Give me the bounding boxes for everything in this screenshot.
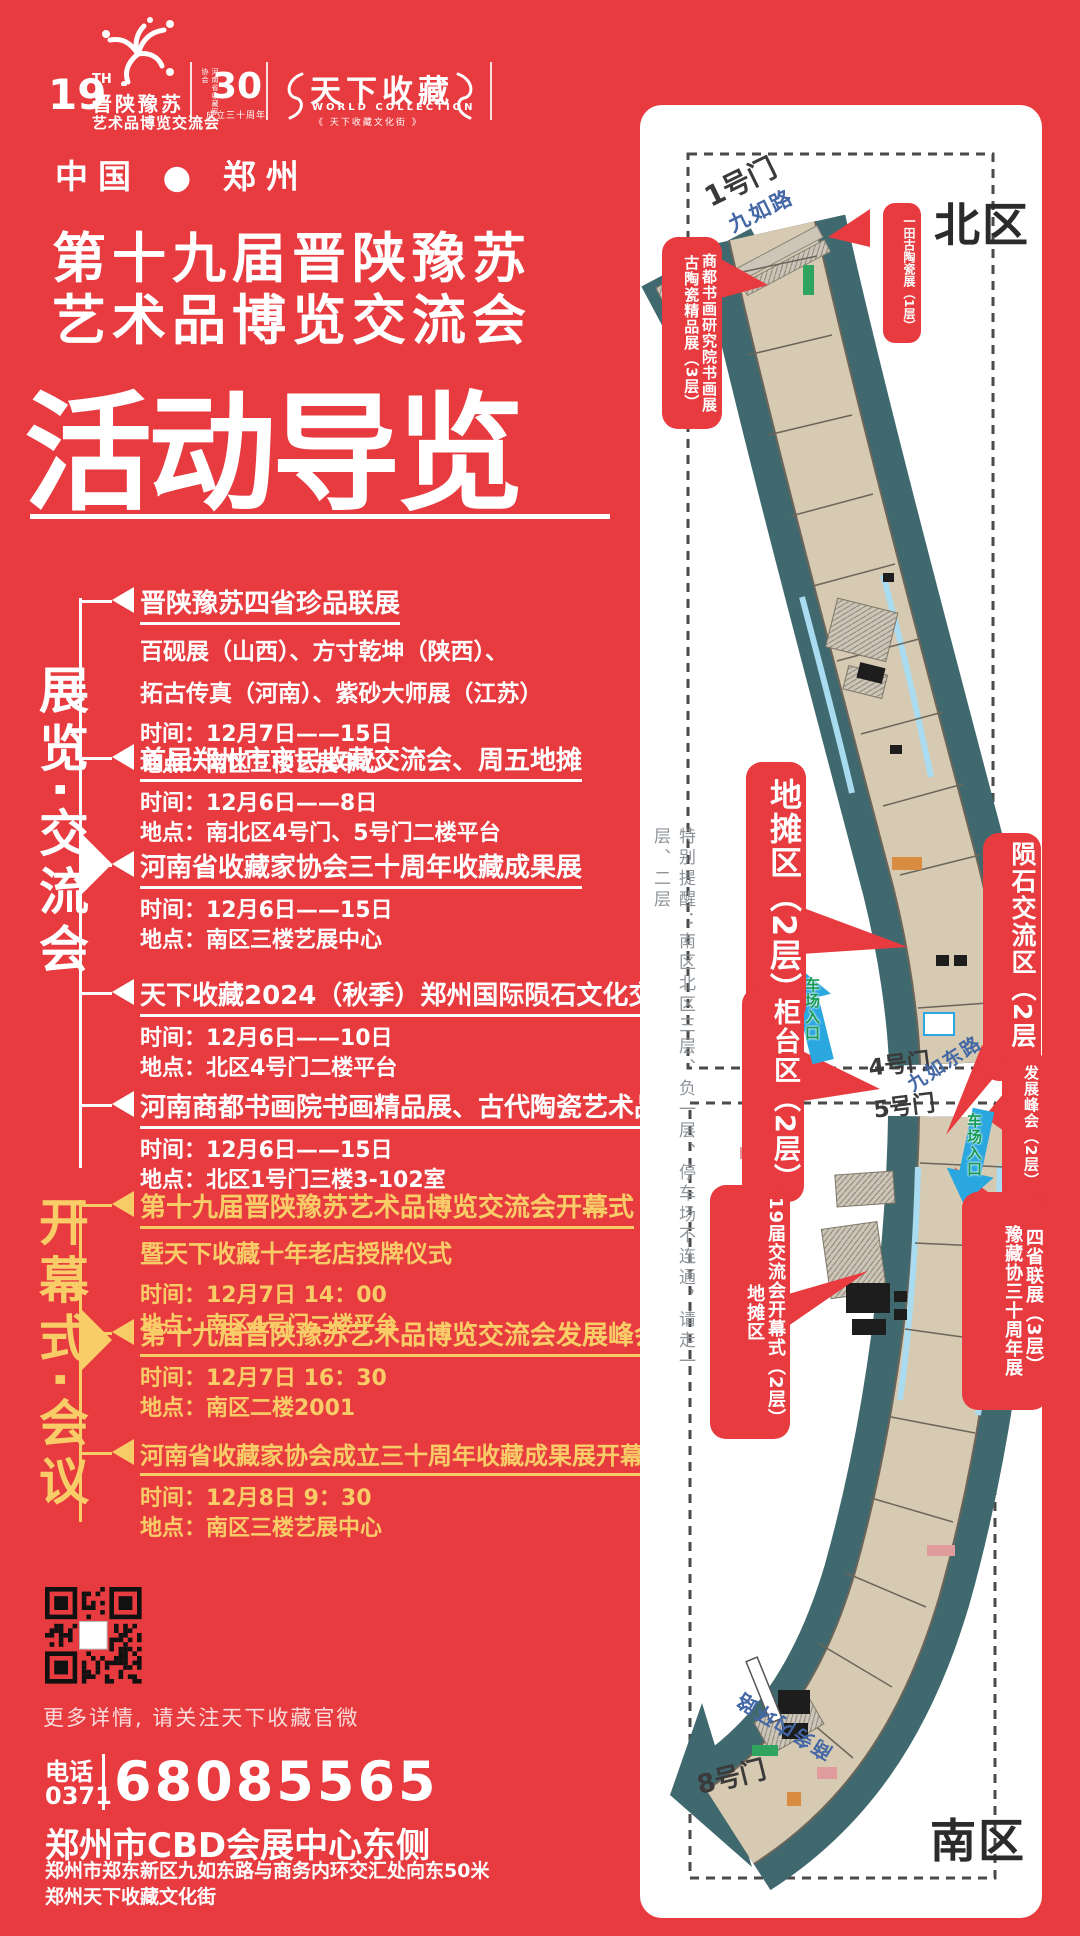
header-divider: [266, 62, 268, 120]
event-time: 时间：12月6日——8日: [140, 789, 660, 819]
header-divider: [190, 62, 192, 120]
event-arrow-icon: [112, 744, 134, 770]
timeline-tick: [82, 1204, 112, 1207]
timeline-tick: [82, 992, 112, 995]
callout-meteorite-zone: 陨石交流区（2层）: [983, 833, 1041, 1081]
phone-divider: [102, 1754, 105, 1810]
callout-counter-zone: 柜台区（2层）: [742, 988, 804, 1202]
event-collectors-30th: 河南省收藏家协会三十周年收藏成果展 时间：12月6日——15日 地点：南区三楼艺…: [140, 852, 660, 956]
title-underline: [30, 514, 610, 519]
timeline-tick: [82, 600, 112, 603]
event-arrow-icon: [112, 1091, 134, 1117]
dragon-ornament-right-icon: [452, 70, 478, 122]
event-title: 晋陕豫苏四省珍品联展: [140, 588, 660, 620]
callout-shangdu-painting: 商都书画研究院书画展古陶瓷精品展（3层）: [662, 237, 722, 429]
event-time: 时间：12月8日 9：30: [140, 1484, 660, 1514]
map-notice: 特别提醒：南区北区三层、负一层、停车场不连通，请走一层、二层: [648, 827, 698, 1393]
event-meteorite-conference: 天下收藏2024（秋季）郑州国际陨石文化交流大会 时间：12月6日——10日 地…: [140, 980, 660, 1084]
event-title: 河南商都书画院书画精品展、古代陶瓷艺术品精品展: [140, 1092, 660, 1124]
timeline-tick: [82, 1104, 112, 1107]
event-time: 时间：12月6日——15日: [140, 1136, 660, 1166]
event-title: 第十九届晋陕豫苏艺术品博览交流会开幕式: [140, 1192, 660, 1224]
event-place: 地点：南区三楼艺展中心: [140, 1514, 660, 1544]
event-place: 地点：南区三楼艺展中心: [140, 926, 660, 956]
section-label-exhibitions: 展览·交流会: [24, 664, 96, 981]
event-subtitle: 暨天下收藏十年老店授牌仪式: [140, 1234, 660, 1269]
event-annual-meeting: 河南省收藏家协会成立三十周年收藏成果展开幕式暨2025年年会 时间：12月8日 …: [140, 1440, 660, 1544]
south-district-label: 南区: [930, 1805, 1026, 1871]
event-place: 地点：南北区4号门、5号门二楼平台: [140, 819, 660, 849]
poster-title-line2: 艺术品博览交流会: [52, 276, 532, 355]
event-opening-ceremony: 第十九届晋陕豫苏艺术品博览交流会开幕式 暨天下收藏十年老店授牌仪式 时间：12月…: [140, 1192, 660, 1341]
timeline-tick: [82, 1332, 112, 1335]
callout-yitian-ceramics: 一田古陶瓷展（1层）: [883, 203, 921, 343]
event-shangdu-exhibition: 河南商都书画院书画精品展、古代陶瓷艺术品精品展 时间：12月6日——15日 地点…: [140, 1092, 660, 1196]
address-line1: 郑州市郑东新区九如东路与商务内环交汇处向东50米: [45, 1856, 489, 1883]
event-title: 天下收藏2024（秋季）郑州国际陨石文化交流大会: [140, 980, 660, 1012]
event-title: 河南省收藏家协会三十周年收藏成果展: [140, 852, 660, 884]
poster-headline: 活动导览: [24, 350, 520, 535]
event-time: 时间：12月7日 16：30: [140, 1364, 660, 1394]
event-desc: 拓古传真（河南）、紫砂大师展（江苏）: [140, 674, 660, 708]
event-desc: 百砚展（山西）、方寸乾坤（陕西）、: [140, 632, 660, 666]
event-citizen-exchange: 首届郑州市市民收藏交流会、周五地摊 时间：12月6日——8日 地点：南北区4号门…: [140, 745, 660, 849]
section-pointer-icon: [82, 1310, 112, 1370]
collection-logo-tagline: 《 天下收藏文化街 》: [314, 115, 423, 128]
address-line2: 郑州天下收藏文化街: [45, 1882, 216, 1909]
venue-map-panel: 北区 南区 特别提醒：南区北区三层、负一层、停车场不连通，请走一层、二层 1号门…: [640, 105, 1042, 1918]
event-place: 地点：北区4号门二楼平台: [140, 1054, 660, 1084]
event-time: 时间：12月7日 14：00: [140, 1281, 660, 1311]
callout-development-summit: 发展峰会（2层）: [1002, 1048, 1044, 1206]
event-place: 地点：南区二楼2001: [140, 1394, 660, 1424]
event-time: 时间：12月6日——15日: [140, 896, 660, 926]
event-development-summit: 第十九届晋陕豫苏艺术品博览交流会发展峰会 时间：12月7日 16：30 地点：南…: [140, 1320, 660, 1424]
timeline-tick: [82, 1452, 112, 1455]
event-time: 时间：12月6日——10日: [140, 1024, 660, 1054]
timeline-tick: [82, 757, 112, 760]
callout-four-province-exhibition: 四省联展（3层）豫藏协三十周年展: [962, 1192, 1048, 1410]
phone-number: 68085565: [114, 1750, 439, 1813]
header-divider: [490, 62, 492, 120]
anniversary-logo-number: 30: [212, 66, 262, 107]
expo-logo-suffix: TH: [92, 72, 112, 87]
event-arrow-icon: [112, 587, 134, 613]
event-arrow-icon: [112, 851, 134, 877]
north-district-label: 北区: [934, 189, 1030, 255]
event-title: 河南省收藏家协会成立三十周年收藏成果展开幕式暨2025年年会: [140, 1440, 660, 1472]
poster-kicker: 中国 ● 郑州: [55, 150, 309, 198]
callout-opening-ceremony: 19届交流会开幕式（2层）地摊区: [710, 1185, 790, 1439]
qr-caption: 更多详情, 请关注天下收藏官微: [43, 1702, 359, 1732]
event-arrow-icon: [112, 1191, 134, 1217]
anniversary-logo-caption: 成立三十周年: [206, 108, 266, 121]
event-arrow-icon: [112, 1439, 134, 1465]
event-title: 首届郑州市市民收藏交流会、周五地摊: [140, 745, 660, 777]
timeline-tick: [82, 864, 112, 867]
callout-flea-market-north: 地摊区（2层）: [746, 762, 806, 1022]
event-title: 第十九届晋陕豫苏艺术品博览交流会发展峰会: [140, 1320, 660, 1352]
qr-code: [43, 1585, 145, 1687]
dragon-ornament-left-icon: [282, 70, 308, 122]
event-arrow-icon: [112, 979, 134, 1005]
parking-entrance-label-south: 车场入口: [964, 1113, 985, 1177]
event-arrow-icon: [112, 1319, 134, 1345]
